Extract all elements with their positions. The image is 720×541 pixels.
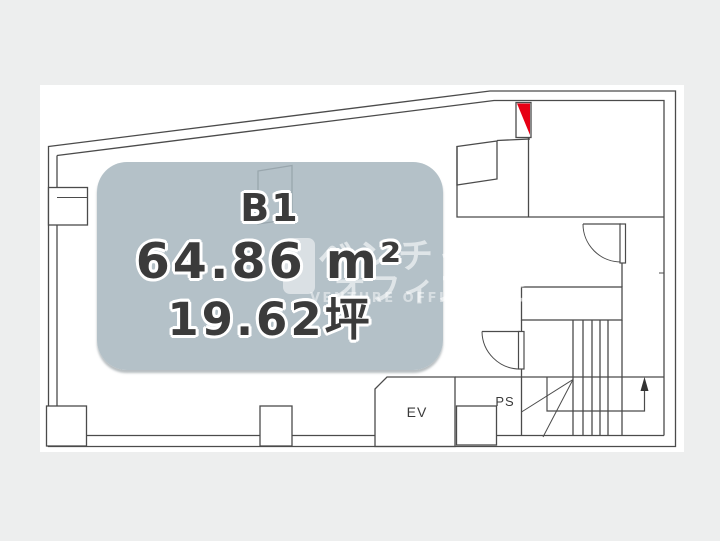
area-sqm-label: 64.86 m² bbox=[136, 233, 405, 291]
unit-info: B1 64.86 m² 19.62坪 bbox=[97, 162, 443, 370]
area-tsubo-label: 19.62坪 bbox=[167, 291, 372, 349]
elevator-label: EV bbox=[407, 404, 428, 420]
door-swing-icon bbox=[482, 332, 524, 370]
pipe-space-room bbox=[457, 406, 497, 445]
floor-label: B1 bbox=[240, 183, 299, 233]
door-swing-icon bbox=[583, 224, 626, 263]
pipe-space-label: PS bbox=[495, 394, 514, 409]
column bbox=[47, 406, 87, 446]
column bbox=[260, 406, 292, 446]
upper-rooms-walls bbox=[457, 138, 664, 217]
entrance-marker-icon bbox=[516, 103, 531, 138]
stairs-up-arrow-icon bbox=[547, 377, 649, 411]
left-wall-opening bbox=[49, 188, 88, 226]
